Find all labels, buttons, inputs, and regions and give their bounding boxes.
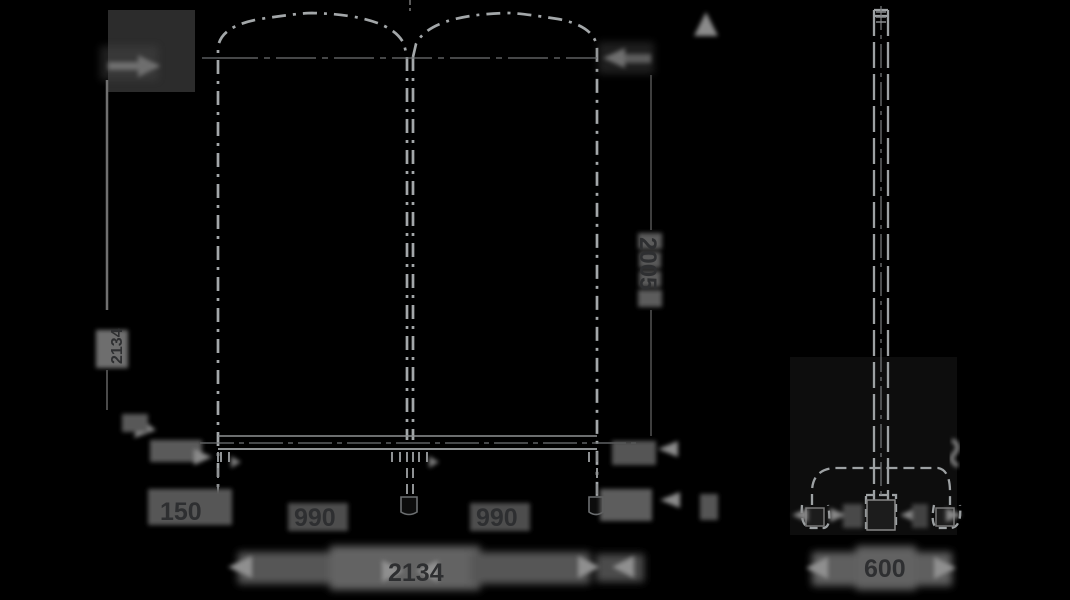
svg-text:2005: 2005 (634, 237, 661, 290)
svg-text:2134: 2134 (109, 328, 126, 364)
svg-text:600: 600 (864, 555, 906, 583)
svg-text:990: 990 (294, 504, 336, 532)
svg-text:150: 150 (160, 498, 202, 526)
svg-text:2134: 2134 (388, 559, 444, 587)
svg-text:990: 990 (476, 504, 518, 532)
